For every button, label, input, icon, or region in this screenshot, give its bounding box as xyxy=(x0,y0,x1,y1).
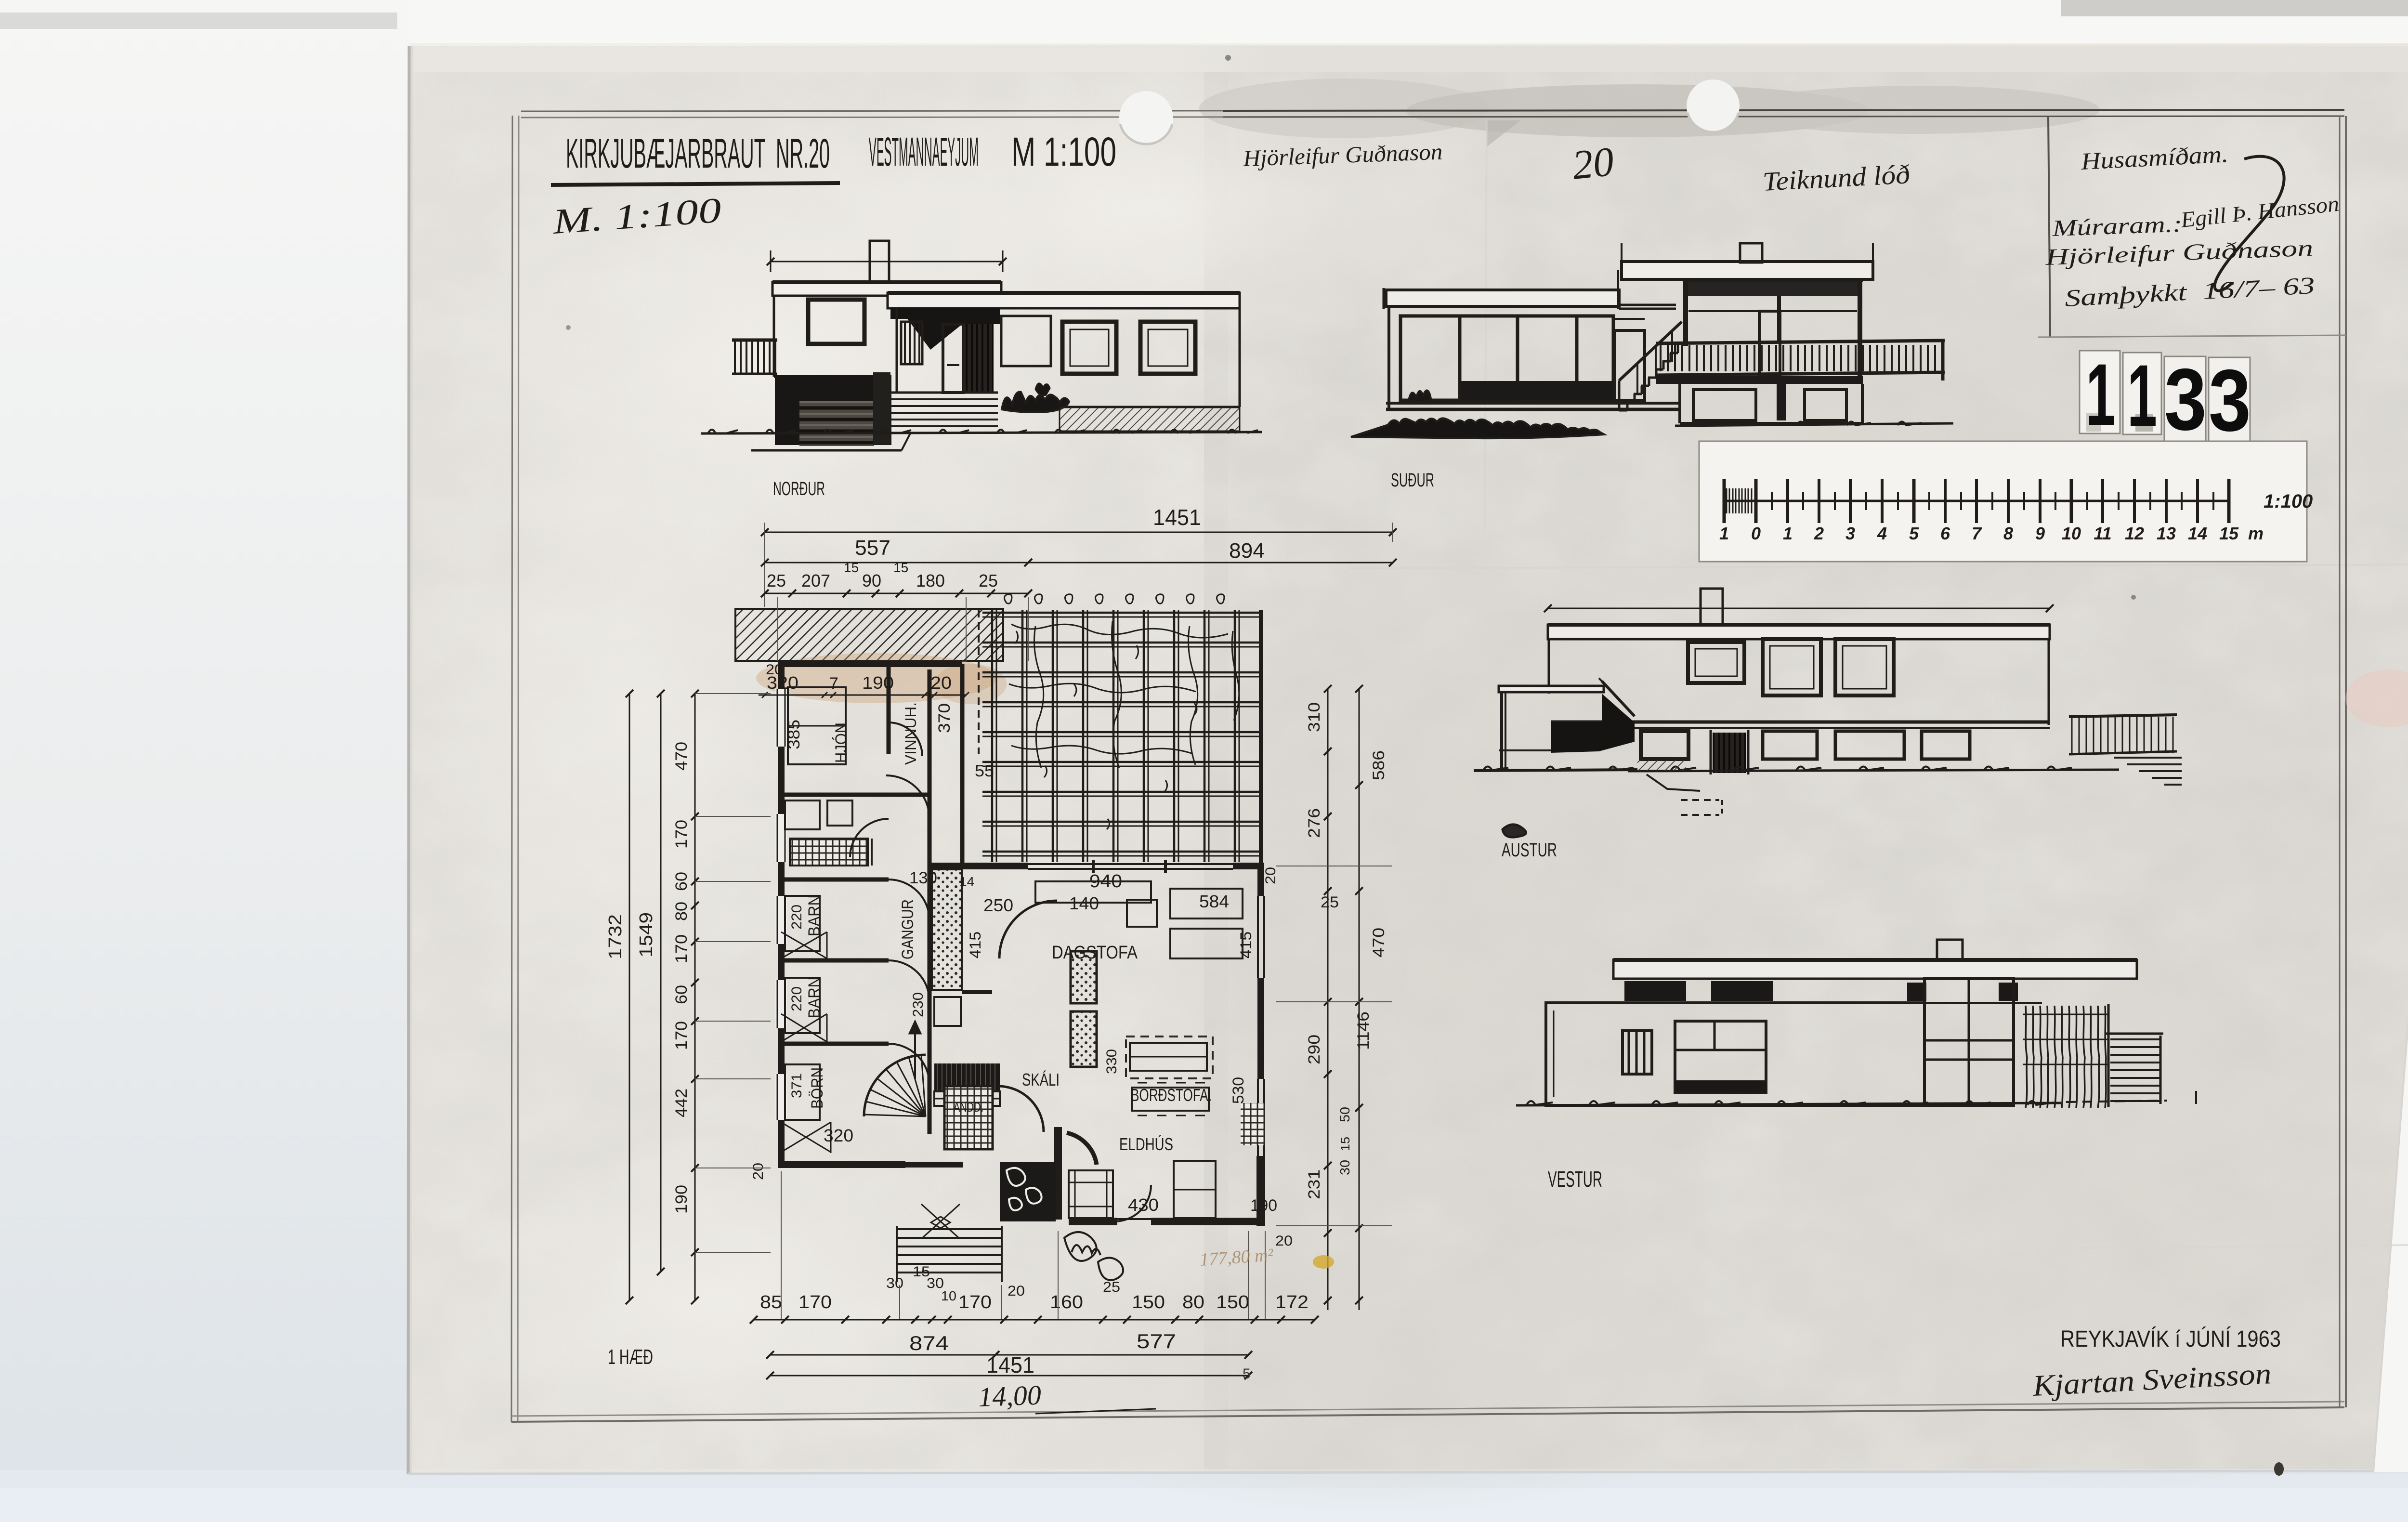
svg-text:370: 370 xyxy=(935,703,954,733)
svg-text:220: 220 xyxy=(789,986,805,1011)
svg-text:276: 276 xyxy=(1305,808,1323,838)
svg-text:6: 6 xyxy=(1940,524,1950,543)
svg-text:10: 10 xyxy=(2062,524,2081,543)
svg-text:530: 530 xyxy=(1230,1077,1247,1104)
svg-text:GANGUR: GANGUR xyxy=(899,899,917,959)
svg-text:20: 20 xyxy=(930,673,952,693)
svg-text:20: 20 xyxy=(750,1163,766,1180)
svg-text:85: 85 xyxy=(760,1292,782,1312)
svg-text:60: 60 xyxy=(672,985,691,1004)
svg-text:170: 170 xyxy=(958,1292,992,1312)
svg-text:0: 0 xyxy=(1751,524,1761,543)
svg-text:20: 20 xyxy=(766,662,783,678)
svg-text:25: 25 xyxy=(979,571,998,590)
svg-text:VINNUH.: VINNUH. xyxy=(902,702,919,765)
svg-text:14,00: 14,00 xyxy=(978,1379,1042,1413)
svg-text:231: 231 xyxy=(1305,1169,1323,1199)
svg-text:1732: 1732 xyxy=(605,914,626,959)
svg-text:60: 60 xyxy=(672,872,691,891)
svg-text:20: 20 xyxy=(1263,867,1279,884)
svg-text:BORÐSTOFA.: BORÐSTOFA. xyxy=(1131,1085,1212,1105)
svg-text:940: 940 xyxy=(1089,871,1122,892)
svg-text:BARN: BARN xyxy=(805,977,824,1018)
svg-text:330: 330 xyxy=(1104,1049,1120,1074)
svg-text:11: 11 xyxy=(2094,524,2111,543)
svg-text:50: 50 xyxy=(1337,1107,1352,1122)
svg-text:1549: 1549 xyxy=(636,912,656,958)
svg-text:9: 9 xyxy=(2035,524,2045,543)
svg-text:15: 15 xyxy=(844,560,859,575)
svg-text:3: 3 xyxy=(2164,350,2207,448)
svg-text:AUSTUR: AUSTUR xyxy=(1502,840,1557,861)
svg-text:557: 557 xyxy=(855,536,890,560)
svg-text:7: 7 xyxy=(1972,524,1982,543)
svg-text:371: 371 xyxy=(789,1073,805,1098)
svg-text:12: 12 xyxy=(2125,524,2144,543)
svg-text:VESTUR: VESTUR xyxy=(1548,1167,1602,1192)
svg-text:20: 20 xyxy=(1570,138,1616,188)
svg-text:3: 3 xyxy=(2209,351,2251,449)
svg-text:577: 577 xyxy=(1137,1330,1176,1352)
svg-text:90: 90 xyxy=(862,571,881,590)
svg-text:10: 10 xyxy=(941,1288,956,1303)
svg-text:470: 470 xyxy=(1370,928,1388,958)
svg-text:80: 80 xyxy=(672,902,691,921)
svg-text:20: 20 xyxy=(1008,1283,1025,1299)
svg-text:1: 1 xyxy=(1783,524,1793,543)
svg-text:14: 14 xyxy=(959,874,974,889)
svg-text:180: 180 xyxy=(916,571,945,590)
svg-text:130: 130 xyxy=(909,869,937,887)
svg-text:55: 55 xyxy=(975,762,994,780)
svg-text:310: 310 xyxy=(1305,702,1323,732)
svg-text:2: 2 xyxy=(1814,524,1824,543)
svg-text:1451: 1451 xyxy=(1153,505,1201,530)
svg-text:15: 15 xyxy=(893,560,908,575)
svg-text:1146: 1146 xyxy=(1354,1011,1373,1050)
svg-text:30: 30 xyxy=(1337,1160,1352,1175)
svg-text:Múraram.:: Múraram.: xyxy=(2051,211,2183,241)
svg-text:170: 170 xyxy=(672,934,691,963)
svg-text:160: 160 xyxy=(1050,1292,1083,1312)
svg-text:442: 442 xyxy=(672,1089,691,1117)
svg-text:5: 5 xyxy=(1243,1366,1251,1382)
svg-text:M 1:100: M 1:100 xyxy=(1011,129,1116,174)
svg-text:874: 874 xyxy=(909,1332,949,1354)
svg-text:ELDHÚS: ELDHÚS xyxy=(1119,1134,1173,1154)
svg-text:170: 170 xyxy=(798,1292,832,1312)
svg-text:13: 13 xyxy=(2157,524,2176,543)
svg-text:584: 584 xyxy=(1199,892,1229,911)
svg-text:586: 586 xyxy=(1370,750,1388,780)
svg-text:415: 415 xyxy=(1237,932,1255,958)
svg-text:KIRKJUBÆJARBRAUT NR.20: KIRKJUBÆJARBRAUT NR.20 xyxy=(566,131,830,177)
svg-text:430: 430 xyxy=(1128,1195,1159,1215)
svg-text:170: 170 xyxy=(672,820,691,849)
svg-text:HJÓN: HJÓN xyxy=(832,722,851,763)
svg-text:5: 5 xyxy=(1909,524,1919,543)
svg-text:8: 8 xyxy=(2003,524,2013,543)
svg-text:1451: 1451 xyxy=(986,1352,1034,1378)
svg-text:320: 320 xyxy=(824,1126,853,1145)
svg-text:25: 25 xyxy=(1321,893,1339,911)
svg-text:150: 150 xyxy=(1216,1292,1249,1312)
svg-text:170: 170 xyxy=(672,1021,691,1050)
svg-text:290: 290 xyxy=(1305,1035,1323,1064)
svg-text:894: 894 xyxy=(1229,539,1265,563)
svg-text:14: 14 xyxy=(2188,524,2207,543)
svg-text:80: 80 xyxy=(1182,1292,1204,1312)
svg-text:SUÐUR: SUÐUR xyxy=(1391,470,1434,491)
svg-text:470: 470 xyxy=(672,742,691,771)
svg-text:REYKJAVÍK í JÚNÍ 1963: REYKJAVÍK í JÚNÍ 1963 xyxy=(2060,1326,2281,1352)
svg-text:BARN: BARN xyxy=(805,895,824,936)
svg-text:385: 385 xyxy=(785,720,803,749)
svg-text:230: 230 xyxy=(910,992,926,1017)
svg-text:NORÐUR: NORÐUR xyxy=(773,478,825,499)
svg-text:3: 3 xyxy=(1845,524,1855,543)
svg-text:7: 7 xyxy=(829,674,838,693)
svg-text:15: 15 xyxy=(2219,524,2239,543)
svg-text:25: 25 xyxy=(1103,1279,1120,1295)
svg-text:25: 25 xyxy=(767,571,786,590)
svg-text:BÖRN: BÖRN xyxy=(808,1067,826,1109)
svg-text:190: 190 xyxy=(862,673,894,693)
svg-text:4: 4 xyxy=(1877,524,1887,543)
svg-text:1:100: 1:100 xyxy=(2264,491,2313,512)
svg-text:20: 20 xyxy=(1275,1233,1293,1249)
svg-text:172: 172 xyxy=(1275,1292,1309,1312)
svg-text:250: 250 xyxy=(983,895,1013,915)
svg-text:ANDD.: ANDD. xyxy=(954,1100,983,1115)
svg-text:30: 30 xyxy=(886,1275,903,1291)
svg-text:15: 15 xyxy=(1338,1137,1352,1151)
svg-text:150: 150 xyxy=(1132,1292,1165,1312)
svg-text:SKÁLI: SKÁLI xyxy=(1022,1070,1060,1089)
svg-text:190: 190 xyxy=(672,1185,691,1214)
svg-text:VESTMANNAEYJUM: VESTMANNAEYJUM xyxy=(869,129,979,174)
svg-text:1: 1 xyxy=(2127,346,2157,445)
svg-text:220: 220 xyxy=(789,905,805,930)
svg-text:207: 207 xyxy=(801,571,830,590)
svg-text:DAGSTOFA: DAGSTOFA xyxy=(1052,943,1138,963)
svg-text:1: 1 xyxy=(1719,524,1729,543)
svg-text:m: m xyxy=(2248,524,2264,543)
svg-text:190: 190 xyxy=(1250,1196,1277,1215)
svg-text:1: 1 xyxy=(2086,345,2116,444)
svg-text:140: 140 xyxy=(1069,893,1099,913)
svg-text:415: 415 xyxy=(967,932,984,958)
svg-text:1 HÆÐ: 1 HÆÐ xyxy=(608,1345,653,1369)
